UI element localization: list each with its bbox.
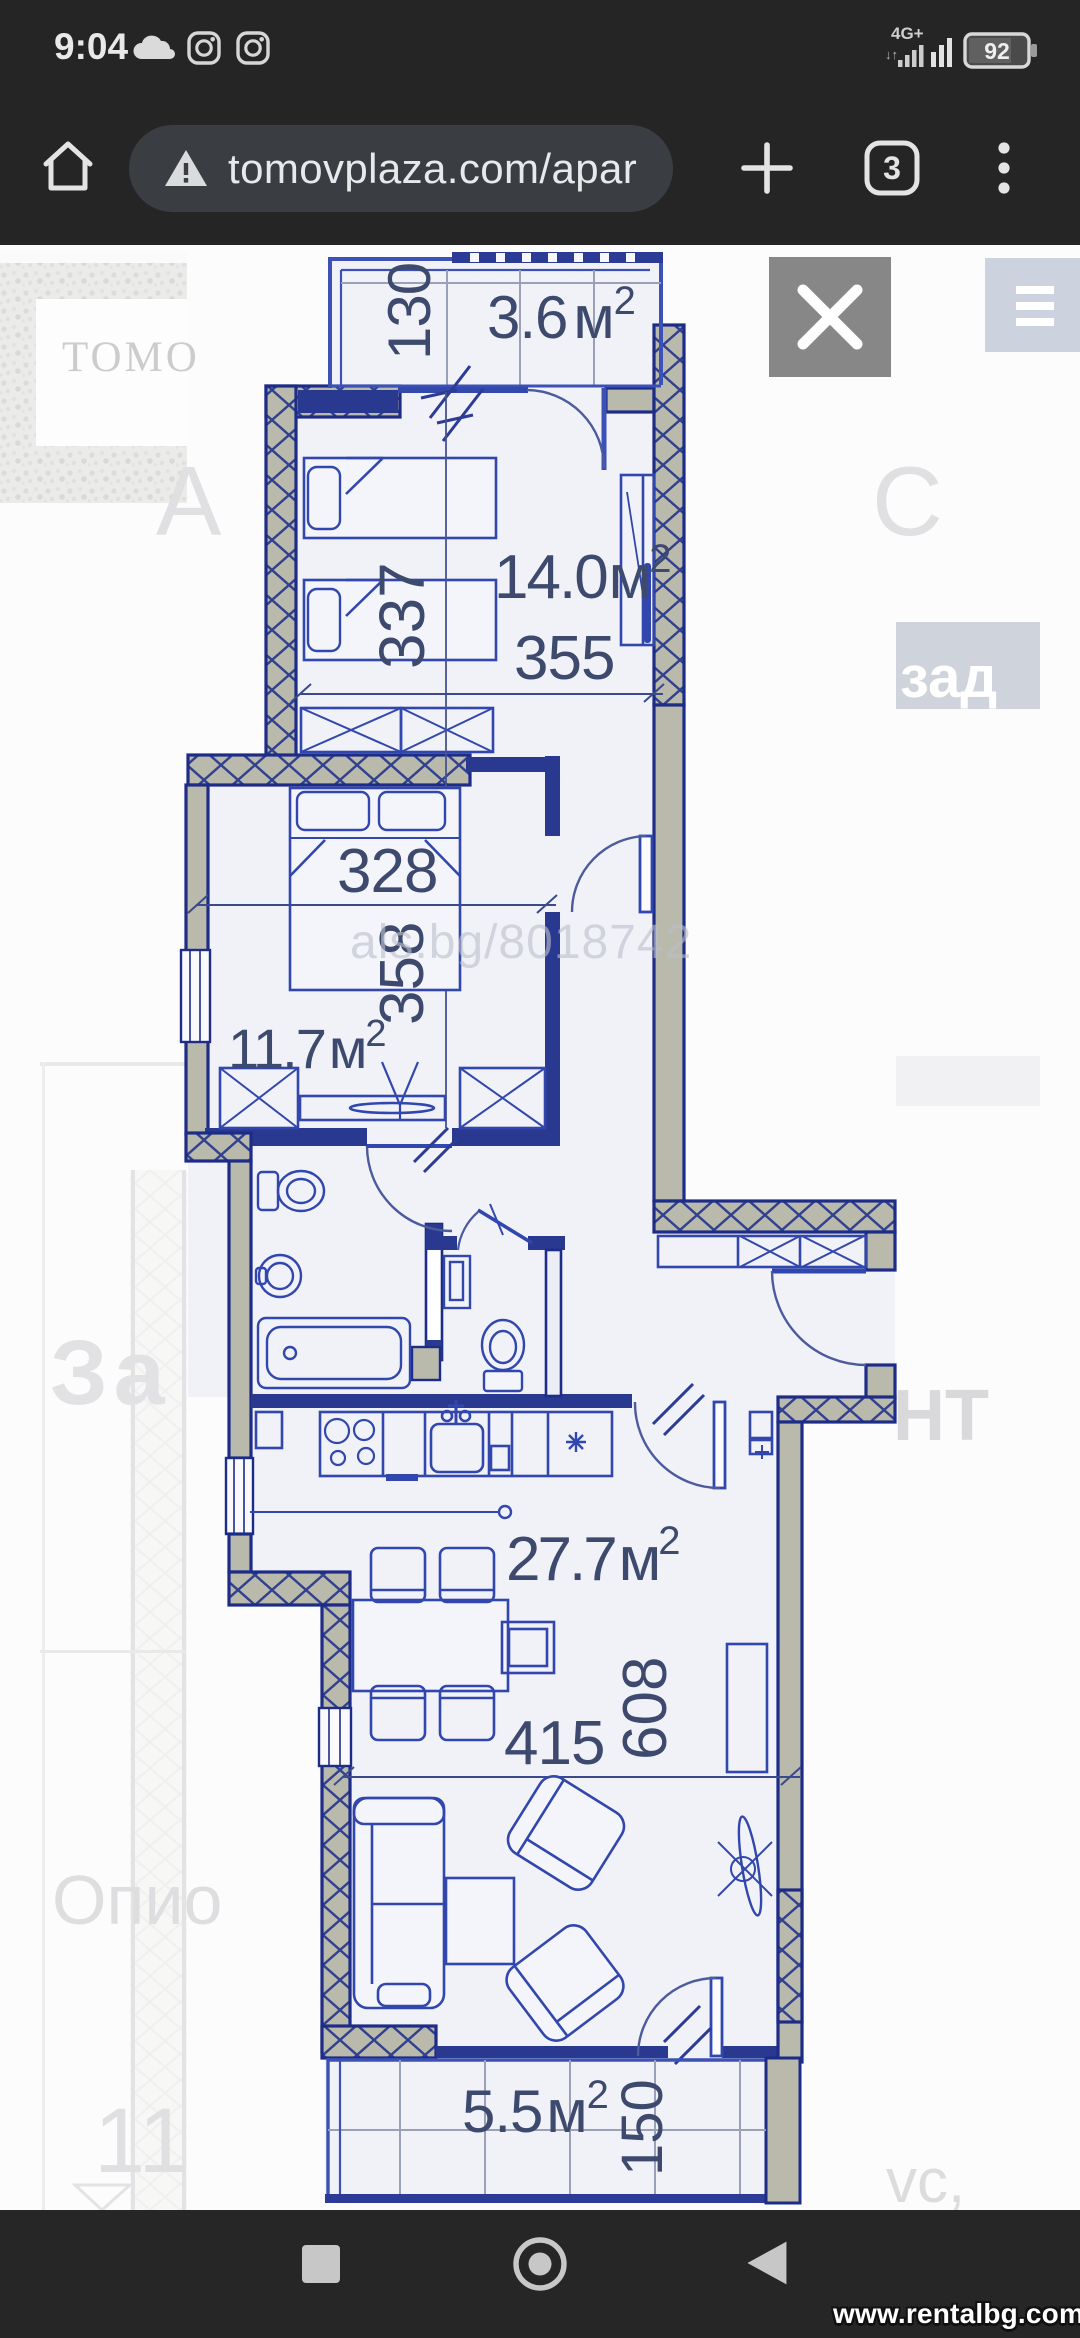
svg-text:608: 608 — [611, 1657, 680, 1760]
svg-text:27.7м2: 27.7м2 — [506, 1519, 679, 1594]
svg-text:TOMO: TOMO — [62, 334, 200, 381]
svg-text:415: 415 — [504, 1709, 604, 1778]
svg-text:А: А — [156, 446, 222, 556]
svg-text:11: 11 — [94, 2090, 190, 2192]
svg-text:328: 328 — [337, 837, 437, 906]
svg-text:337: 337 — [366, 562, 438, 669]
svg-text:vc,: vc, — [886, 2147, 965, 2216]
svg-text:5.5м2: 5.5м2 — [462, 2073, 608, 2145]
svg-text:С: С — [872, 446, 943, 556]
svg-text:130: 130 — [376, 263, 443, 360]
svg-text:зад: зад — [900, 645, 997, 710]
svg-text:НТ: НТ — [893, 1376, 989, 1456]
svg-text:3.6м2: 3.6м2 — [487, 279, 635, 351]
svg-text:150: 150 — [610, 2079, 675, 2176]
svg-text:92: 92 — [984, 38, 1010, 64]
svg-text:355: 355 — [514, 624, 614, 693]
svg-text:Опио: Опио — [52, 1861, 222, 1939]
svg-text:За: За — [50, 1322, 171, 1424]
svg-text:14.0м2: 14.0м2 — [494, 537, 670, 612]
svg-text:3: 3 — [883, 150, 901, 186]
svg-text:als.bg/8018742: als.bg/8018742 — [350, 916, 692, 969]
svg-text:11.7м2: 11.7м2 — [228, 1013, 385, 1080]
